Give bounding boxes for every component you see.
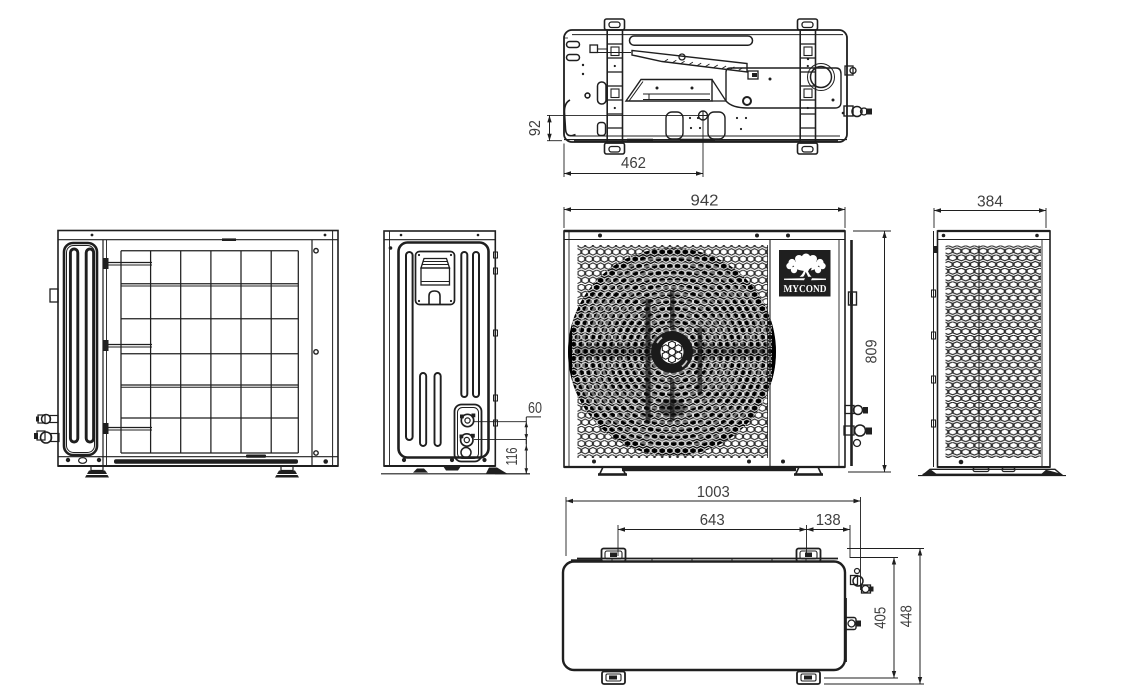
svg-text:138: 138 (816, 512, 841, 529)
svg-text:942: 942 (691, 193, 719, 210)
svg-text:60: 60 (528, 400, 542, 417)
svg-text:116: 116 (504, 447, 521, 465)
svg-text:384: 384 (977, 194, 1003, 211)
svg-text:92: 92 (527, 120, 544, 136)
svg-text:809: 809 (864, 339, 881, 363)
svg-text:1003: 1003 (697, 484, 730, 501)
svg-text:MYCOND: MYCOND (783, 284, 826, 295)
svg-text:643: 643 (700, 512, 725, 529)
svg-text:448: 448 (899, 605, 916, 627)
svg-text:405: 405 (873, 607, 890, 629)
svg-text:462: 462 (621, 155, 646, 172)
